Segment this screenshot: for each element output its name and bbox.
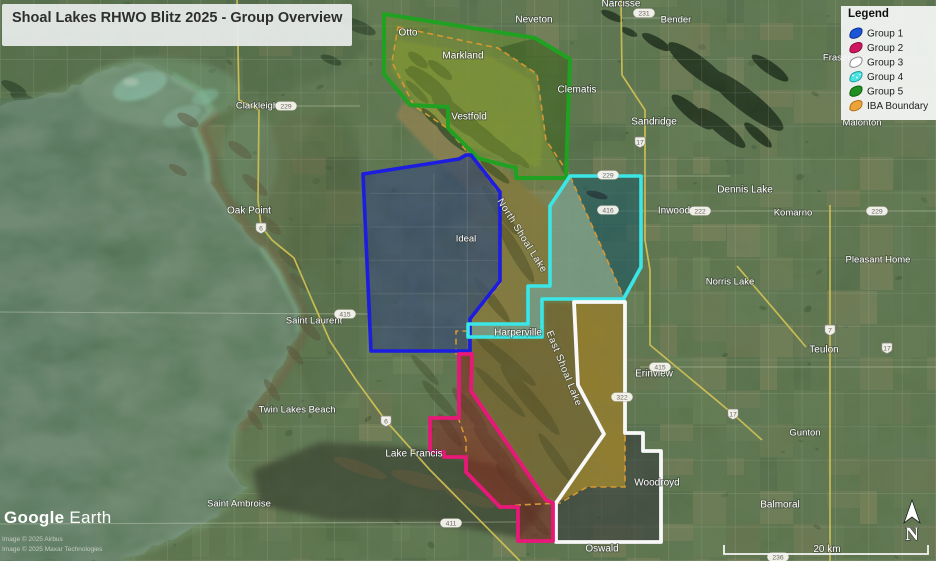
svg-text:Oswald: Oswald	[585, 544, 618, 555]
svg-text:Saint Ambroise: Saint Ambroise	[207, 498, 271, 509]
svg-text:Narcisse: Narcisse	[602, 0, 641, 10]
svg-text:415: 415	[654, 364, 666, 371]
svg-text:Teulon: Teulon	[809, 345, 838, 356]
svg-text:Norris Lake: Norris Lake	[706, 276, 755, 287]
svg-text:17: 17	[883, 345, 891, 352]
svg-text:Sandridge: Sandridge	[631, 117, 677, 128]
svg-text:Group 2: Group 2	[867, 43, 904, 54]
svg-text:Group 3: Group 3	[867, 58, 904, 69]
svg-text:322: 322	[616, 394, 628, 401]
svg-text:231: 231	[638, 10, 650, 17]
svg-text:Clarkleigh: Clarkleigh	[236, 100, 278, 111]
svg-text:236: 236	[772, 554, 784, 561]
svg-text:Lake Francis: Lake Francis	[385, 449, 442, 460]
svg-text:Inwood: Inwood	[658, 206, 690, 217]
svg-text:Komarno: Komarno	[774, 207, 813, 218]
svg-text:IBA Boundary: IBA Boundary	[867, 101, 928, 112]
svg-text:Clematis: Clematis	[558, 85, 597, 96]
svg-text:Pleasant Home: Pleasant Home	[846, 254, 911, 265]
svg-text:Group 4: Group 4	[867, 72, 904, 83]
svg-text:Legend: Legend	[848, 8, 889, 20]
svg-text:Oak Point: Oak Point	[227, 206, 271, 217]
svg-text:Otto: Otto	[399, 28, 418, 39]
svg-text:20 km: 20 km	[813, 544, 840, 555]
svg-text:415: 415	[339, 311, 351, 318]
svg-text:222: 222	[694, 208, 706, 215]
svg-text:411: 411	[446, 520, 457, 527]
svg-text:416: 416	[602, 207, 614, 214]
svg-text:Dennis Lake: Dennis Lake	[717, 185, 773, 196]
svg-text:Saint Laurent: Saint Laurent	[286, 315, 343, 326]
svg-text:Balmoral: Balmoral	[760, 500, 799, 511]
svg-text:Neveton: Neveton	[515, 15, 552, 26]
svg-text:Vestfold: Vestfold	[451, 112, 487, 123]
svg-text:229: 229	[602, 172, 614, 179]
svg-text:N: N	[905, 524, 919, 545]
svg-text:Markland: Markland	[442, 51, 483, 62]
svg-text:Group 5: Group 5	[867, 87, 904, 98]
svg-text:Twin Lakes Beach: Twin Lakes Beach	[258, 404, 335, 415]
svg-text:6: 6	[384, 418, 388, 425]
svg-text:Harperville: Harperville	[494, 328, 542, 339]
svg-text:7: 7	[828, 327, 832, 334]
svg-text:17: 17	[636, 139, 644, 146]
svg-text:Bender: Bender	[661, 14, 692, 25]
svg-text:Ideal: Ideal	[456, 233, 477, 244]
svg-text:Group 1: Group 1	[867, 29, 904, 40]
svg-text:229: 229	[280, 103, 292, 110]
svg-text:229: 229	[871, 208, 883, 215]
svg-text:6: 6	[259, 225, 263, 232]
svg-text:17: 17	[729, 411, 737, 418]
svg-text:Gunton: Gunton	[789, 427, 820, 438]
svg-text:Woodroyd: Woodroyd	[634, 478, 679, 489]
